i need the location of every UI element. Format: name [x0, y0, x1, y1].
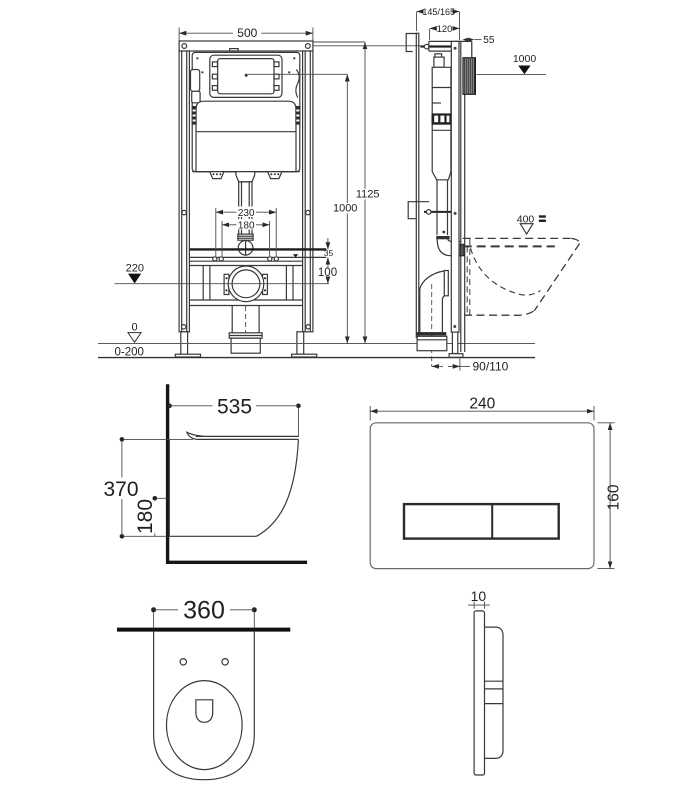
svg-text:145/165: 145/165 — [422, 7, 455, 17]
svg-text:1000: 1000 — [333, 203, 357, 215]
svg-text:100: 100 — [318, 267, 337, 279]
svg-text:535: 535 — [217, 395, 252, 418]
svg-text:35: 35 — [324, 248, 334, 258]
svg-text:230: 230 — [238, 208, 255, 219]
svg-text:10: 10 — [471, 588, 487, 604]
svg-text:240: 240 — [469, 396, 495, 413]
svg-text:180: 180 — [238, 220, 255, 231]
svg-text:0-200: 0-200 — [114, 346, 143, 358]
svg-text:180: 180 — [134, 499, 157, 534]
svg-text:120: 120 — [437, 24, 453, 35]
svg-text:220: 220 — [126, 263, 144, 275]
svg-text:55: 55 — [483, 35, 495, 46]
svg-text:360: 360 — [183, 597, 225, 625]
svg-text:1000: 1000 — [513, 53, 537, 65]
svg-text:0: 0 — [131, 321, 137, 333]
svg-text:160: 160 — [606, 484, 623, 510]
svg-text:500: 500 — [237, 26, 257, 40]
svg-text:1125: 1125 — [356, 189, 380, 201]
svg-text:370: 370 — [103, 478, 138, 501]
svg-text:90/110: 90/110 — [473, 360, 509, 374]
